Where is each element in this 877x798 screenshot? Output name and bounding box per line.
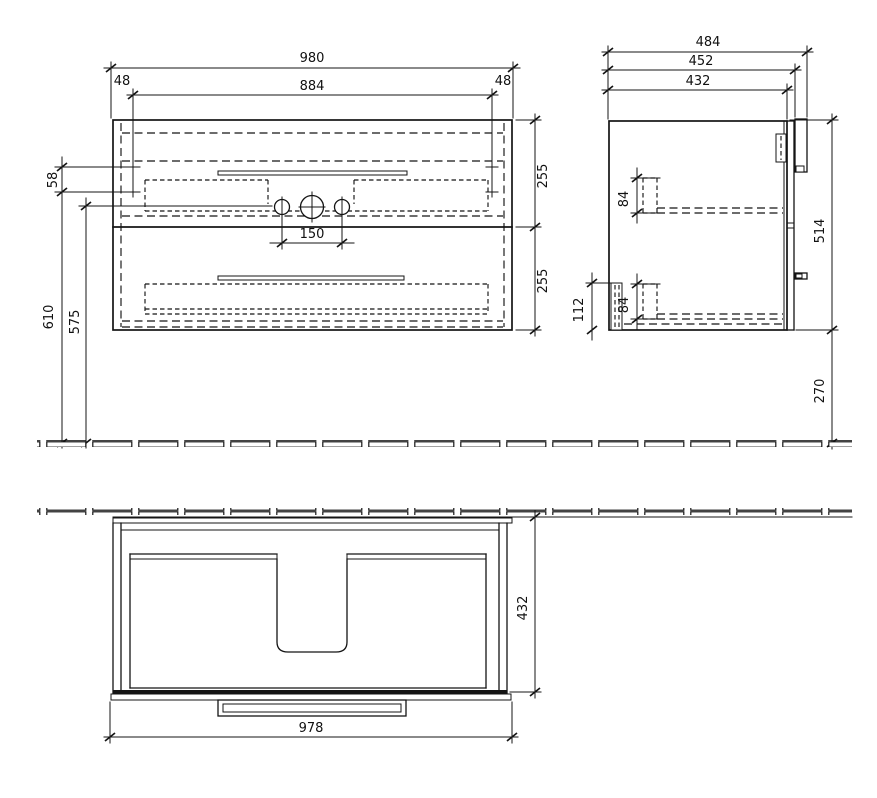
dim-side-floor-clearance: 270 bbox=[813, 379, 828, 404]
dim-front-drawer-upper: 255 bbox=[536, 164, 551, 189]
dim-front-height-holes: 575 bbox=[68, 310, 83, 335]
side-top-dimensions: 484 452 432 bbox=[602, 35, 813, 119]
vanity-dimension-drawing: 980 884 48 48 58 610 575 255 255 bbox=[0, 0, 877, 798]
front-view: 980 884 48 48 58 610 575 255 255 bbox=[42, 51, 551, 448]
side-upper-handle-profile bbox=[795, 119, 807, 172]
side-upper-handle-lip bbox=[796, 166, 804, 172]
dim-front-hole-spacing: 150 bbox=[300, 227, 325, 242]
technical-drawing-page: 980 884 48 48 58 610 575 255 255 bbox=[0, 0, 877, 798]
plan-view: 432 978 bbox=[104, 511, 541, 743]
dim-front-height-total: 610 bbox=[42, 305, 57, 330]
side-lower-handle-lip bbox=[796, 274, 802, 278]
plan-front-panel bbox=[111, 692, 511, 716]
side-hinge-bracket bbox=[776, 134, 786, 162]
dim-front-drawer-lower: 255 bbox=[536, 269, 551, 294]
plan-right-dimension: 432 bbox=[510, 511, 541, 698]
dim-side-depth-front: 452 bbox=[689, 54, 714, 69]
dim-plan-width-front: 978 bbox=[299, 721, 324, 736]
dim-front-offset-right: 48 bbox=[495, 74, 512, 89]
side-view: 484 452 432 514 270 84 84 bbox=[572, 35, 838, 449]
dim-side-depth-overall: 484 bbox=[696, 35, 721, 50]
floor-hatch-band bbox=[37, 440, 852, 447]
dim-side-rail-lower: 84 bbox=[617, 297, 632, 314]
front-right-dimensions: 255 255 bbox=[516, 114, 551, 336]
dim-front-overall-width: 980 bbox=[300, 51, 325, 66]
dim-front-top-detail: 58 bbox=[46, 172, 61, 189]
dim-side-height-body: 514 bbox=[813, 219, 828, 244]
dim-side-rail-upper: 84 bbox=[617, 191, 632, 208]
front-upper-handle-rail bbox=[218, 171, 407, 175]
front-lower-handle-rail bbox=[218, 276, 404, 280]
wall-hatch-band bbox=[37, 508, 852, 523]
basin-cutout bbox=[277, 559, 347, 652]
dim-side-back-detail: 112 bbox=[572, 298, 587, 323]
dim-side-depth-body: 432 bbox=[686, 74, 711, 89]
front-cabinet-body bbox=[113, 120, 512, 330]
dim-front-offset-left: 48 bbox=[114, 74, 131, 89]
dim-plan-depth-body: 432 bbox=[516, 596, 531, 621]
dim-front-inner-width: 884 bbox=[300, 79, 325, 94]
